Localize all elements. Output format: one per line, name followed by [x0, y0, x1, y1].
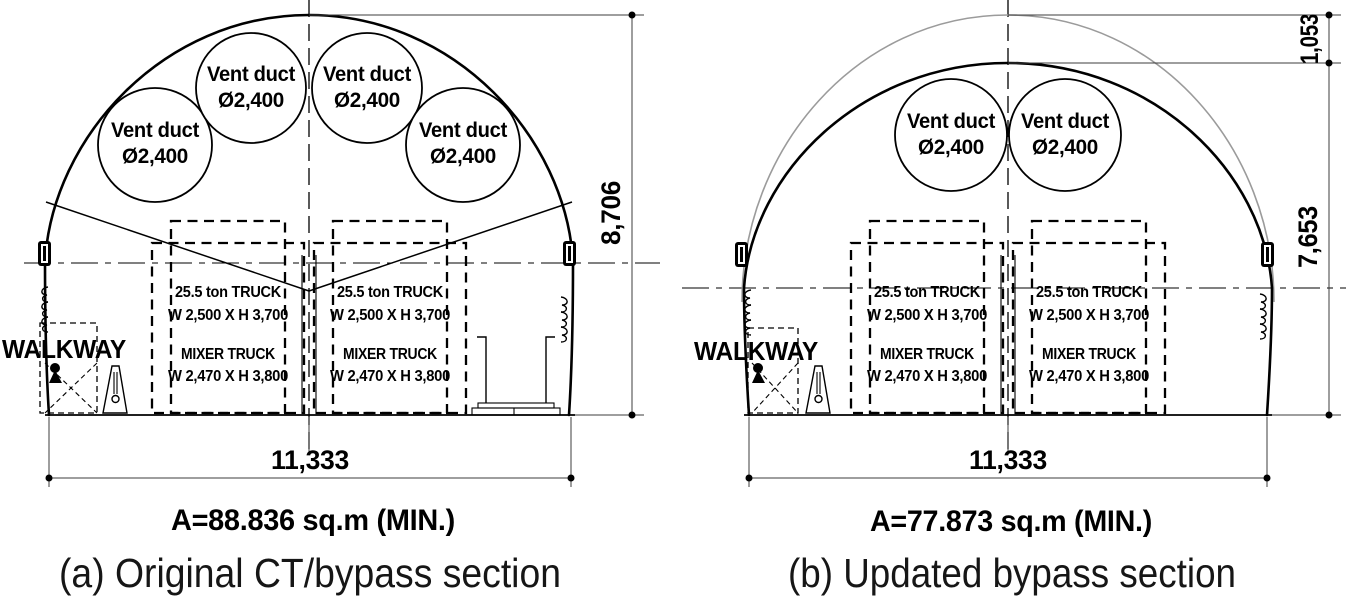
- mixer-size-label: W 2,470 X H 3,800: [168, 368, 288, 385]
- truck-label: 25.5 ton TRUCK: [337, 284, 444, 301]
- ton-truck-envelope-box: [851, 243, 1003, 413]
- cable-hook-icon: [745, 305, 751, 320]
- truck-envelope-lane-right: 25.5 ton TRUCK W 2,500 X H 3,700 MIXER T…: [314, 221, 466, 413]
- width-dimension-value: 11,333: [271, 445, 349, 475]
- truck-size-label: W 2,500 X H 3,700: [1029, 307, 1149, 324]
- width-dimension: 11,333: [46, 417, 575, 487]
- crown-drop-value: 1,053: [1296, 14, 1324, 64]
- vent-duct-diameter: Ø2,400: [122, 145, 188, 168]
- dimension-dot: [46, 475, 53, 482]
- dimension-dot: [568, 475, 575, 482]
- equipment-trough: [472, 337, 560, 415]
- width-dimension: 11,333: [746, 417, 1271, 487]
- cone-icon: [806, 366, 830, 413]
- walkway-zone: WALKWAY: [694, 328, 830, 413]
- vent-duct-diameter: Ø2,400: [430, 145, 496, 168]
- truck-label: 25.5 ton TRUCK: [1036, 284, 1143, 301]
- dimension-dot: [1326, 60, 1333, 67]
- cable-hook-icon: [1260, 324, 1266, 339]
- worker-figure-icon: [752, 370, 765, 383]
- truck-label: 25.5 ton TRUCK: [874, 284, 981, 301]
- vent-duct-diameter: Ø2,400: [918, 136, 984, 159]
- diagram-a: Vent duct Ø2,400 Vent duct Ø2,400 Vent d…: [2, 0, 660, 596]
- mixer-size-label: W 2,470 X H 3,800: [1029, 368, 1149, 385]
- vent-duct-label: Vent duct: [323, 63, 411, 86]
- vent-duct-diameter: Ø2,400: [218, 89, 284, 112]
- vent-duct-diameter: Ø2,400: [1032, 136, 1098, 159]
- walkway-label: WALKWAY: [694, 336, 818, 366]
- cable-hook-icon: [561, 297, 567, 312]
- truck-size-label: W 2,500 X H 3,700: [168, 307, 288, 324]
- cone-icon: [103, 366, 127, 413]
- dimension-dot: [1326, 412, 1333, 419]
- worker-figure-icon: [49, 370, 62, 383]
- mixer-size-label: W 2,470 X H 3,800: [330, 368, 450, 385]
- caption: (b) Updated bypass section: [788, 550, 1236, 596]
- wall-clamp-icon: [735, 242, 748, 267]
- mixer-label: MIXER TRUCK: [1042, 346, 1137, 363]
- cone-weight: [112, 396, 119, 403]
- dimension-dot: [629, 412, 636, 419]
- cable-hook-icon: [1260, 294, 1266, 309]
- cable-hook-icon: [561, 327, 567, 342]
- height-dimension-value: 7,653: [1293, 206, 1323, 268]
- dimension-dot: [1264, 475, 1271, 482]
- cable-hook-icon: [561, 312, 567, 327]
- drawing-canvas: Vent duct Ø2,400 Vent duct Ø2,400 Vent d…: [0, 0, 1349, 596]
- vent-duct-label: Vent duct: [907, 110, 995, 133]
- vent-duct-circle: [895, 79, 1007, 191]
- excavation-line-right: [309, 202, 572, 291]
- wall-clamp-icon: [38, 241, 51, 266]
- ton-truck-envelope-box: [152, 243, 304, 413]
- width-dimension-value: 11,333: [969, 445, 1047, 475]
- mixer-size-label: W 2,470 X H 3,800: [867, 368, 987, 385]
- caption: (a) Original CT/bypass section: [59, 550, 561, 596]
- truck-size-label: W 2,500 X H 3,700: [330, 307, 450, 324]
- excavation-line-left: [46, 202, 309, 291]
- truck-label: 25.5 ton TRUCK: [175, 284, 282, 301]
- truck-envelope-lane-left: 25.5 ton TRUCK W 2,500 X H 3,700 MIXER T…: [851, 221, 1003, 413]
- area-label: A=88.836 sq.m (MIN.): [171, 504, 455, 537]
- vent-duct-circle: [196, 33, 306, 143]
- vent-duct-circle: [1009, 79, 1121, 191]
- dimension-dot: [1326, 12, 1333, 19]
- cable-hook-icon: [745, 290, 751, 305]
- walkway-zone: WALKWAY: [2, 323, 127, 413]
- height-dimension-value: 8,706: [596, 181, 626, 245]
- mixer-label: MIXER TRUCK: [880, 346, 975, 363]
- ton-truck-envelope-box: [314, 243, 466, 413]
- vent-duct-label: Vent duct: [419, 119, 507, 142]
- mixer-label: MIXER TRUCK: [181, 346, 276, 363]
- cone-weight: [815, 396, 822, 403]
- wall-clamp-icon: [1261, 242, 1274, 267]
- wall-clamp-icon: [563, 241, 576, 266]
- vent-duct-diameter: Ø2,400: [334, 89, 400, 112]
- ton-truck-envelope-box: [1013, 243, 1165, 413]
- mixer-label: MIXER TRUCK: [343, 346, 438, 363]
- dimension-dot: [746, 475, 753, 482]
- figure-tunnel-sections: Vent duct Ø2,400 Vent duct Ø2,400 Vent d…: [0, 0, 1349, 596]
- vent-duct-circle: [312, 33, 422, 143]
- vent-duct-label: Vent duct: [207, 63, 295, 86]
- area-label: A=77.873 sq.m (MIN.): [870, 505, 1152, 538]
- vent-duct-label: Vent duct: [1021, 110, 1109, 133]
- dimension-dot: [629, 12, 636, 19]
- truck-envelope-lane-right: 25.5 ton TRUCK W 2,500 X H 3,700 MIXER T…: [1013, 221, 1165, 413]
- truck-envelope-lane-left: 25.5 ton TRUCK W 2,500 X H 3,700 MIXER T…: [152, 221, 304, 413]
- truck-size-label: W 2,500 X H 3,700: [867, 307, 987, 324]
- cable-hook-icon: [1260, 309, 1266, 324]
- vent-duct-label: Vent duct: [111, 119, 199, 142]
- diagram-b: Vent duct Ø2,400 Vent duct Ø2,400 25.5 t…: [682, 0, 1346, 596]
- walkway-label: WALKWAY: [2, 334, 126, 364]
